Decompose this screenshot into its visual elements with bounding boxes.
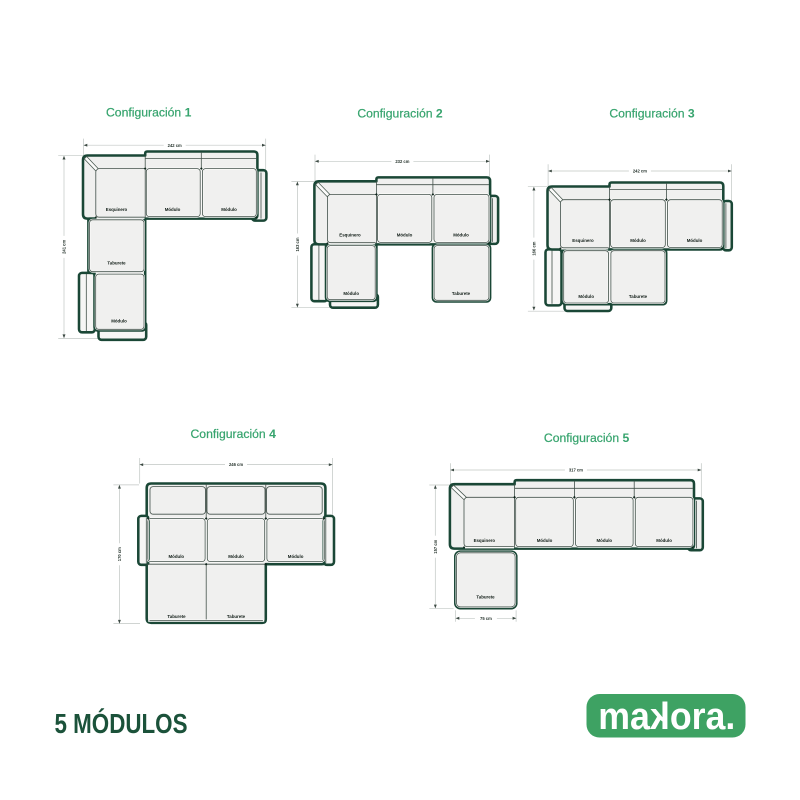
svg-text:Configuración 3: Configuración 3 xyxy=(609,106,695,120)
svg-text:Módulo: Módulo xyxy=(578,294,594,299)
svg-text:Taburete: Taburete xyxy=(452,291,471,296)
svg-text:317 cm: 317 cm xyxy=(569,468,583,473)
svg-text:Módulo: Módulo xyxy=(165,207,181,212)
svg-text:Taburete: Taburete xyxy=(107,261,126,266)
svg-text:246 cm: 246 cm xyxy=(229,462,243,467)
svg-text:Taburete: Taburete xyxy=(476,595,495,600)
svg-text:Esquinero: Esquinero xyxy=(572,238,594,243)
svg-text:Módulo: Módulo xyxy=(343,291,359,296)
svg-text:Módulo: Módulo xyxy=(168,554,184,559)
svg-text:163 cm: 163 cm xyxy=(295,237,300,251)
svg-text:Módulo: Módulo xyxy=(596,538,612,543)
svg-text:166 cm: 166 cm xyxy=(531,241,536,255)
svg-text:Módulo: Módulo xyxy=(397,233,413,238)
svg-text:Módulo: Módulo xyxy=(687,238,703,243)
svg-text:Módulo: Módulo xyxy=(656,538,672,543)
svg-text:Módulo: Módulo xyxy=(453,233,469,238)
svg-text:k: k xyxy=(649,695,669,737)
svg-text:232 cm: 232 cm xyxy=(395,159,409,164)
svg-text:170 cm: 170 cm xyxy=(117,547,122,561)
svg-text:Módulo: Módulo xyxy=(537,538,553,543)
svg-text:Módulo: Módulo xyxy=(288,554,304,559)
svg-text:Esquinero: Esquinero xyxy=(474,538,496,543)
svg-text:ma: ma xyxy=(598,695,650,737)
svg-text:242 cm: 242 cm xyxy=(168,143,182,148)
svg-text:Configuración 2: Configuración 2 xyxy=(357,106,443,120)
svg-text:Esquinero: Esquinero xyxy=(106,207,128,212)
svg-text:Configuración 1: Configuración 1 xyxy=(106,106,192,120)
svg-text:242 cm: 242 cm xyxy=(633,169,647,174)
svg-text:Esquinero: Esquinero xyxy=(339,233,361,238)
svg-text:Taburete: Taburete xyxy=(227,614,246,619)
svg-text:Configuración 5: Configuración 5 xyxy=(544,431,630,445)
svg-text:5 MÓDULOS: 5 MÓDULOS xyxy=(55,708,188,739)
svg-text:Taburete: Taburete xyxy=(629,294,648,299)
svg-text:Configuración 4: Configuración 4 xyxy=(191,427,277,441)
svg-text:75 cm: 75 cm xyxy=(480,616,492,621)
svg-text:Módulo: Módulo xyxy=(221,207,237,212)
svg-text:Módulo: Módulo xyxy=(111,319,127,324)
svg-text:ora.: ora. xyxy=(670,695,735,737)
svg-text:Taburete: Taburete xyxy=(167,614,186,619)
svg-text:157 cm: 157 cm xyxy=(433,539,438,553)
svg-text:241 cm: 241 cm xyxy=(62,240,67,254)
svg-text:Módulo: Módulo xyxy=(630,238,646,243)
svg-text:Módulo: Módulo xyxy=(228,554,244,559)
